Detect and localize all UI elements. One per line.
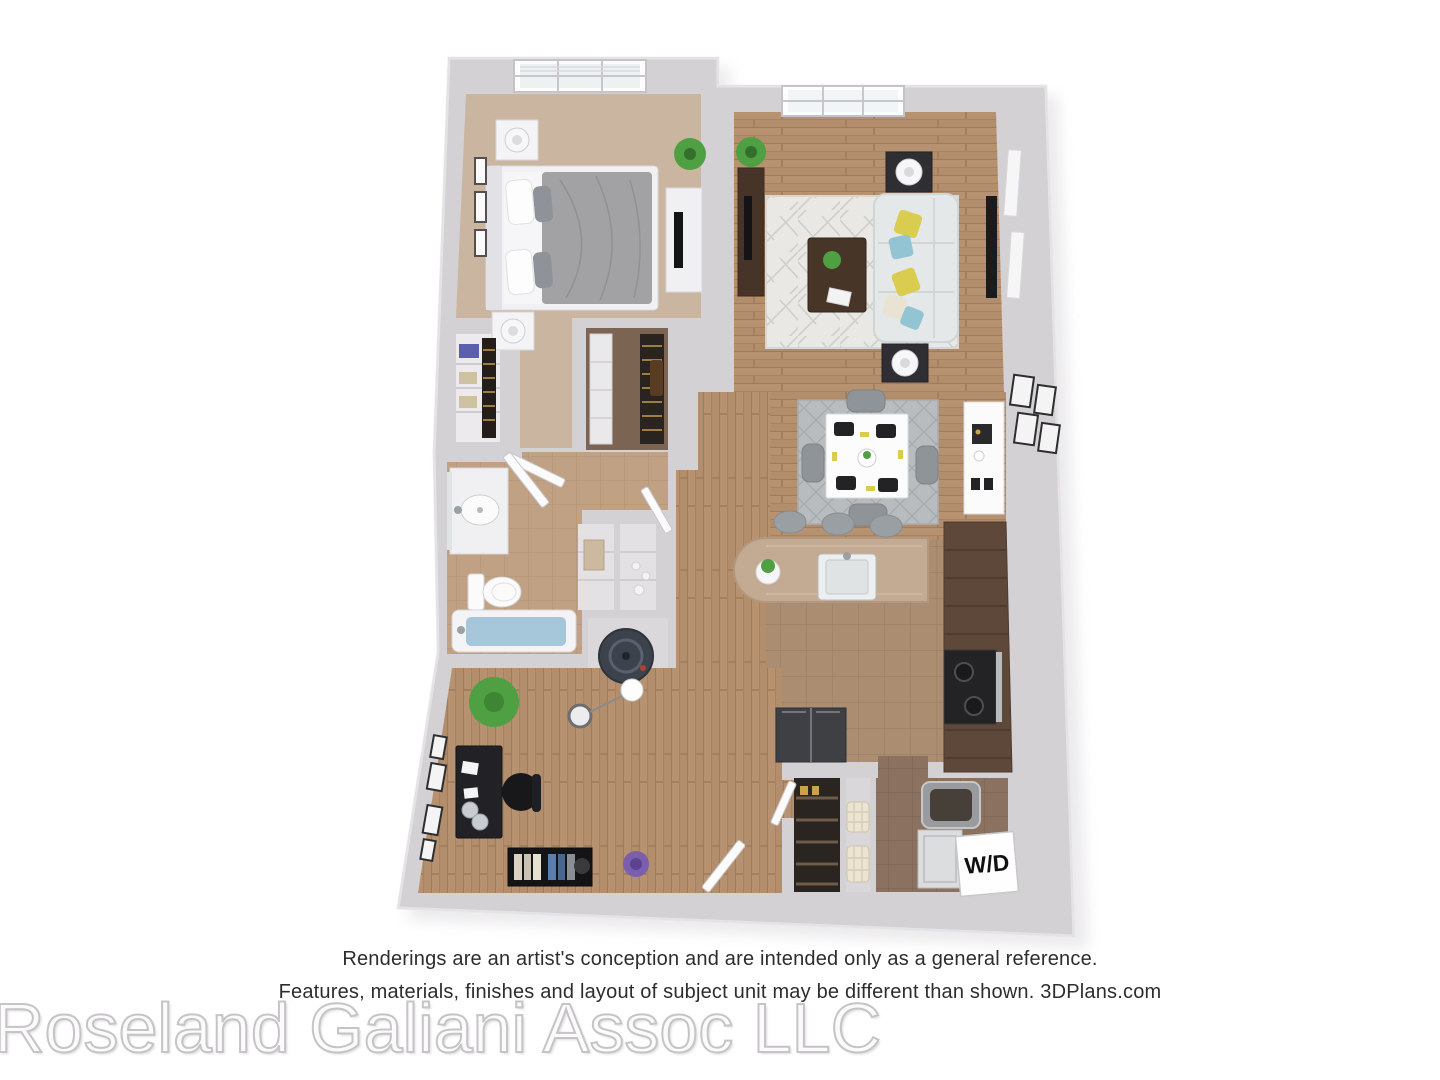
wall-mounted-tv [986,196,997,298]
pendant-light [621,679,643,701]
kitchen-cabinets [944,522,1012,772]
bar-stool [774,511,806,533]
pantry-jar [812,786,819,795]
potted-plant-core [484,692,504,712]
desk-paper [461,761,479,775]
hanging-clothes [482,338,496,438]
storage-box [459,372,477,384]
coffee-table-plant [823,251,841,269]
laundry-sink-basin [930,789,972,821]
dining-chair [847,390,885,412]
gallery-frame [1014,413,1038,445]
toilet-bowl [483,577,521,607]
page: W/D Renderings are an artist's conceptio… [0,0,1440,1080]
book [567,854,575,880]
vanity-mirror [447,472,452,550]
potted-plant-core [745,146,757,158]
bedroom-dresser [666,188,702,292]
ring-light-fixture [569,705,591,727]
mug [971,478,980,490]
bookshelf-decor [574,858,590,874]
toiletry-bottle [632,562,640,570]
gallery-frame [1038,423,1060,453]
floor-plan-rendering: W/D [0,0,1440,1080]
table-lamp-finial [512,135,522,145]
bar-stool [822,513,854,535]
console-tv [744,196,752,260]
toiletry-bottle [634,585,644,595]
bedroom-tv [674,212,683,268]
placemat [834,422,854,436]
bed-accent-pillow [532,251,553,288]
sink-faucet [843,552,851,560]
linen-closet-divider [614,524,620,610]
table-lamp-finial [900,358,910,368]
wall-art-frame [427,763,446,791]
wicker-hamper [847,846,869,882]
table-lamp-finial [508,326,518,336]
bed-pillow [505,249,535,295]
wall-art-frame [430,735,447,759]
pantry-jar [800,786,808,795]
desk-paper [464,787,479,798]
accent-pillow-blue [888,234,914,260]
book [514,854,522,880]
office-chair-back [532,774,541,812]
wall-art-frame [475,230,486,256]
gallery-frame [1034,385,1056,415]
bed-headboard [486,166,502,310]
folded-linens-blue [459,344,479,358]
bedroom-window [514,60,646,92]
gallery-frame [1010,375,1034,407]
book [524,854,531,880]
laundry-wall [870,778,876,892]
accent-plant-core [630,858,642,870]
disclaimer-line-1: Renderings are an artist's conception an… [0,948,1440,971]
washer-dryer-label: W/D [964,849,1011,879]
nook-wall [840,778,846,892]
napkin-yellow [866,486,875,491]
centerpiece-greens [863,451,871,459]
placemat [836,476,856,490]
book [533,854,541,880]
sink-drain [477,507,483,513]
desk-lamp [472,814,488,830]
patterned-box [584,540,604,570]
napkin-yellow [860,432,869,437]
bar-stool [870,515,902,537]
wall-art-frame [420,839,435,861]
bathtub-water [466,617,566,646]
book [548,854,556,880]
book [558,854,565,880]
bed-accent-pillow [532,185,553,222]
napkin-yellow [832,452,837,461]
closet-organizer [590,334,612,444]
oven-handle [996,652,1002,722]
coffee-cup [974,451,984,461]
garment-brown [650,360,663,396]
tub-faucet [457,626,465,634]
espresso-machine [972,424,992,444]
toiletry-bottle [642,572,650,580]
potted-plant-core [684,148,696,160]
kitchen-sink-basin [826,560,868,594]
living-room-window [782,86,904,116]
table-lamp-finial [904,167,914,177]
dining-chair [802,444,824,482]
dining-chair [916,446,938,484]
wicker-hamper [847,802,869,832]
watermark: Roseland Galiani Assoc LLC [0,988,881,1068]
sink-faucet [454,506,462,514]
placemat [876,424,896,438]
water-heater-cap [622,652,630,660]
stove-burner [965,697,983,715]
espresso-accent [976,430,981,435]
heater-valve [640,665,646,671]
stove-burner [955,663,973,681]
wall-art-frame [475,158,486,184]
bed-duvet [542,172,652,304]
mug [984,478,993,490]
washer-dryer-unit: W/D [955,832,1018,897]
napkin-yellow [898,450,903,459]
bed-pillow [505,179,535,225]
wall-art-frame [475,192,486,222]
pantry-floor [794,778,840,892]
counter-plant [761,559,775,573]
storage-box [459,396,477,408]
placemat [878,478,898,492]
toilet-tank [468,574,484,610]
